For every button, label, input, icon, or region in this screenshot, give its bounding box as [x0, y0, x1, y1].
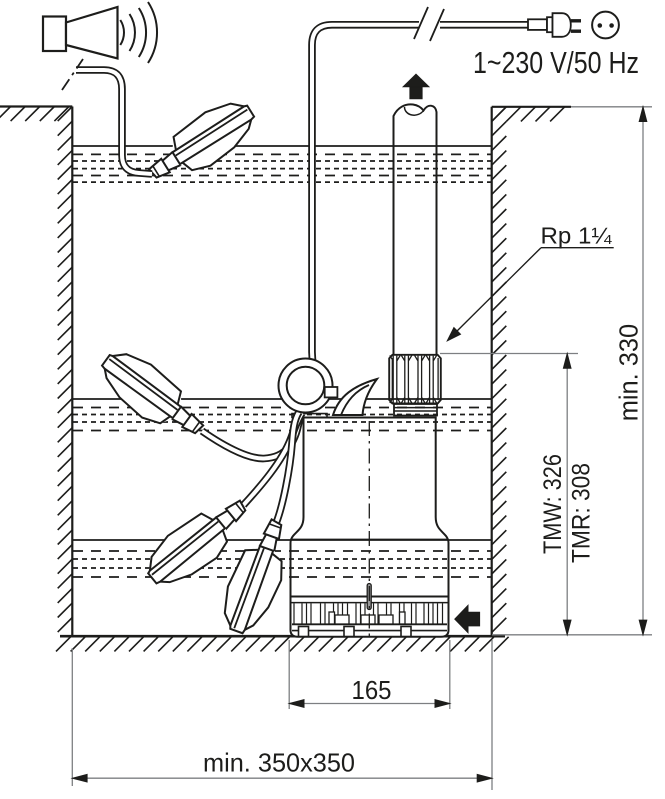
svg-text:1~230 V/50 Hz: 1~230 V/50 Hz: [473, 45, 639, 80]
svg-text:Rp 1¼: Rp 1¼: [541, 223, 612, 249]
svg-text:165: 165: [352, 677, 392, 705]
svg-text:TMW: 326: TMW: 326: [539, 454, 567, 554]
svg-text:min. 330: min. 330: [616, 324, 644, 422]
svg-text:TMR: 308: TMR: 308: [568, 463, 596, 563]
svg-text:min. 350x350: min. 350x350: [203, 748, 355, 778]
